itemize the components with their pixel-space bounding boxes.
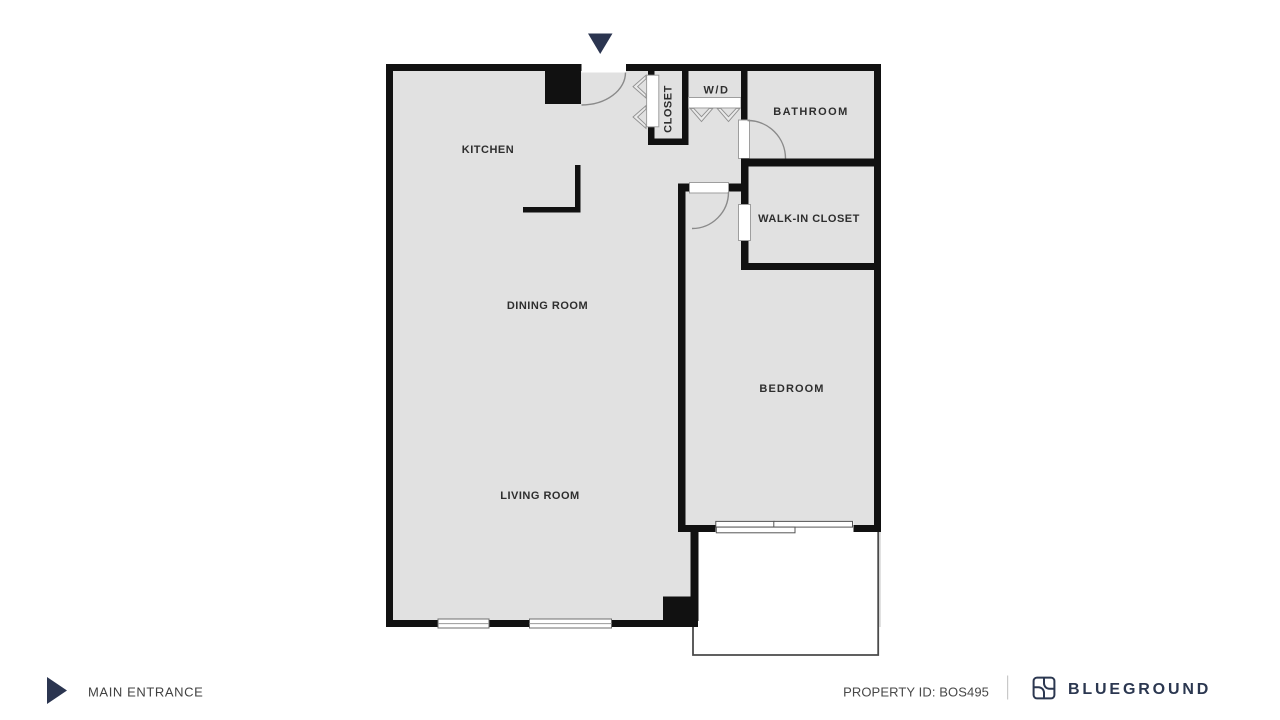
svg-text:W/D: W/D <box>704 85 730 97</box>
svg-text:LIVING ROOM: LIVING ROOM <box>500 490 579 502</box>
svg-text:CLOSET: CLOSET <box>663 85 675 133</box>
svg-text:BATHROOM: BATHROOM <box>773 106 849 118</box>
svg-text:KITCHEN: KITCHEN <box>462 144 514 156</box>
svg-text:BLUEGROUND: BLUEGROUND <box>1068 681 1211 698</box>
svg-text:BEDROOM: BEDROOM <box>759 383 824 395</box>
svg-text:WALK-IN CLOSET: WALK-IN CLOSET <box>758 213 860 225</box>
svg-text:MAIN ENTRANCE: MAIN ENTRANCE <box>88 685 203 700</box>
svg-text:DINING ROOM: DINING ROOM <box>507 300 588 312</box>
svg-text:PROPERTY ID: BOS495: PROPERTY ID: BOS495 <box>843 685 989 700</box>
